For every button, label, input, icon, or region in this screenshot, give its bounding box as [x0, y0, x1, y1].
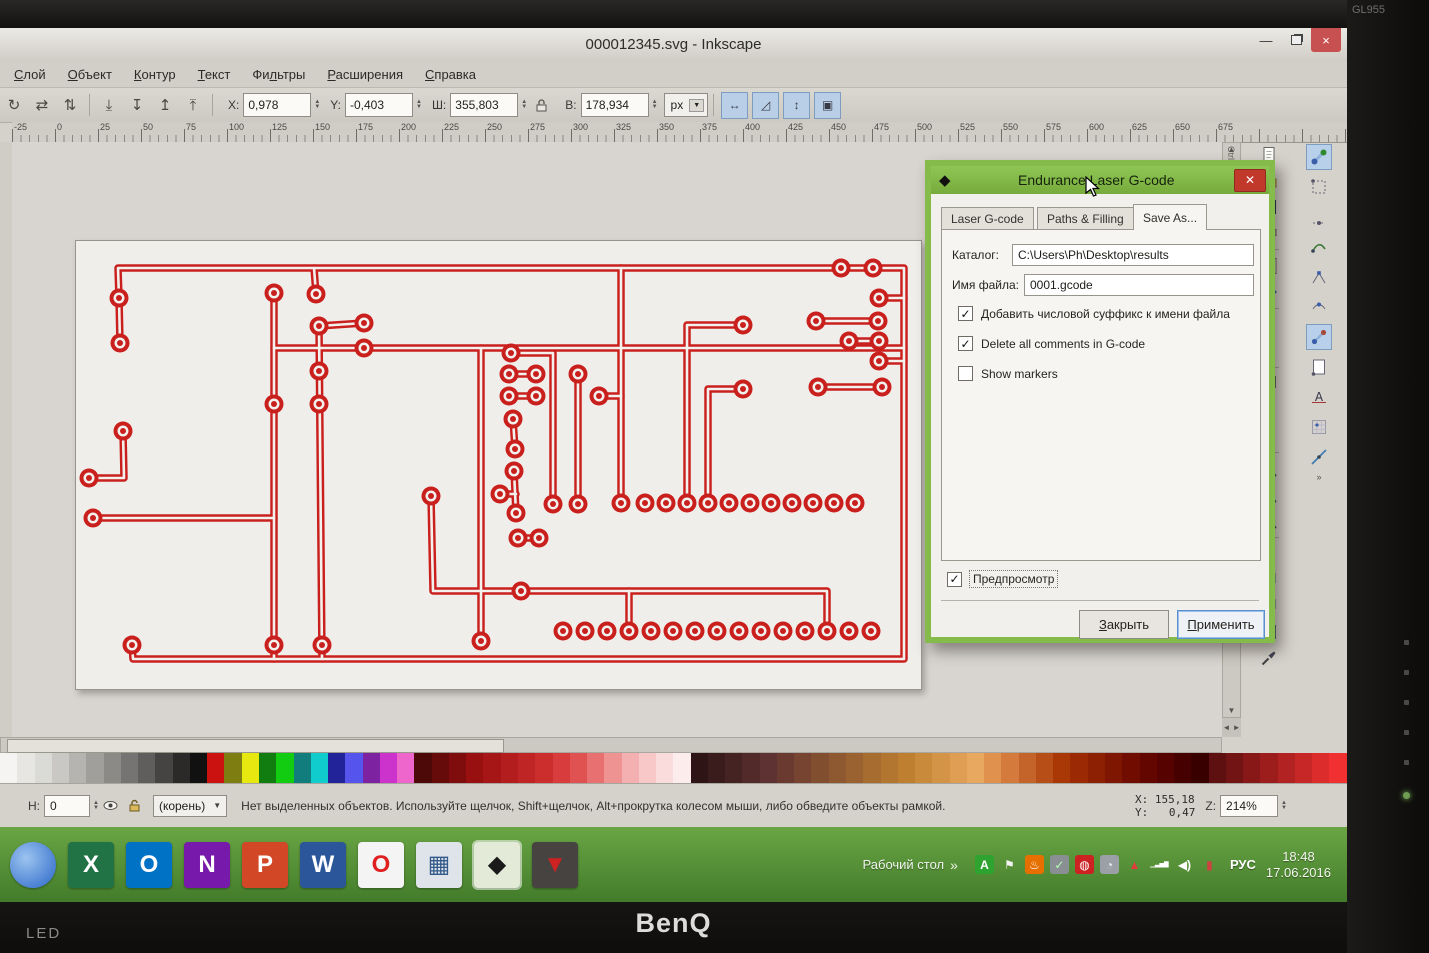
enter-button[interactable] [1404, 760, 1409, 765]
clock[interactable]: 18:4817.06.2016 [1266, 849, 1331, 881]
preview-label: Предпросмотр [970, 571, 1057, 587]
height-field[interactable]: 178,934 [581, 93, 649, 117]
dialog-close-icon[interactable]: ✕ [1234, 169, 1266, 192]
mouse-cursor [1085, 176, 1101, 198]
scale-corners-toggle[interactable]: ◿ [752, 92, 779, 119]
palette-swatch[interactable] [1019, 753, 1036, 783]
palette-swatch[interactable] [35, 753, 52, 783]
monitor-power-button[interactable] [1403, 792, 1410, 799]
ruler-tick-label: 575 [1046, 122, 1061, 132]
tab-Laser G-code[interactable]: Laser G-code [941, 207, 1034, 230]
palette-swatch[interactable] [207, 753, 224, 783]
tray-usb-eject-icon[interactable]: ✓ [1050, 855, 1069, 874]
snap-node-path-icon[interactable] [1306, 234, 1332, 260]
palette-swatch[interactable] [104, 753, 121, 783]
tray-action-center-flag-icon[interactable]: ⚑ [1000, 855, 1019, 874]
dialog-separator [941, 600, 1259, 601]
palette-swatch[interactable] [1001, 753, 1018, 783]
svg-text:A: A [1315, 390, 1324, 404]
raise-icon[interactable]: ↥ [152, 92, 178, 118]
palette-swatch[interactable] [1278, 753, 1295, 783]
catalog-input[interactable]: C:\Users\Ph\Desktop\results [1012, 244, 1254, 266]
height-field-label: В: [565, 98, 576, 112]
palette-swatch[interactable] [811, 753, 828, 783]
palette-swatch[interactable] [1260, 753, 1277, 783]
palette-swatch[interactable] [1191, 753, 1208, 783]
statusbar: Н: 0 ▲▼ (корень)▼ Нет выделенных объекто… [0, 783, 1347, 827]
document-page[interactable] [75, 240, 922, 690]
flip-vertical-icon[interactable]: ⇅ [57, 92, 83, 118]
ruler-tick-label: 450 [831, 122, 846, 132]
palette-swatch[interactable] [518, 753, 535, 783]
palette-swatch[interactable] [760, 753, 777, 783]
restore-icon [1291, 35, 1302, 45]
palette-swatch[interactable] [311, 753, 328, 783]
opacity-spinner[interactable]: ▲▼ [93, 801, 99, 811]
palette-swatch[interactable] [276, 753, 293, 783]
palette-swatch[interactable] [138, 753, 155, 783]
palette-swatch[interactable] [777, 753, 794, 783]
palette-swatch[interactable] [984, 753, 1001, 783]
status-message: Нет выделенных объектов. Используйте щел… [241, 799, 1135, 813]
palette-swatch[interactable] [1053, 753, 1070, 783]
toolbar-chevron-icon[interactable]: » [950, 857, 958, 873]
checkbox[interactable]: ✓ [958, 306, 973, 321]
menu-Слой[interactable]: Слой [14, 67, 46, 82]
lock-ratio-icon[interactable] [528, 92, 554, 118]
tab-Paths & Filling[interactable]: Paths & Filling [1037, 207, 1134, 230]
units-dropdown[interactable]: px▼ [664, 93, 709, 117]
snap-bbox-edge-icon[interactable] [1306, 204, 1332, 230]
menubar: СлойОбъектКонтурТекстФильтрыРасширенияСп… [0, 62, 1347, 88]
palette-swatch[interactable] [967, 753, 984, 783]
checkbox[interactable] [958, 366, 973, 381]
palette-swatch[interactable] [1295, 753, 1312, 783]
checkbox-label: Добавить числовой суффикс к имени файла [981, 307, 1230, 321]
palette-swatch[interactable] [535, 753, 552, 783]
zoom-input[interactable]: 214% [1220, 795, 1278, 817]
horizontal-ruler[interactable]: -250255075100125150175200225250275300325… [12, 122, 1347, 143]
scale-stroke-toggle[interactable]: ↔ [721, 92, 748, 119]
dialog-apply-button[interactable]: Применить [1177, 610, 1265, 639]
tray-network-signal-icon[interactable]: ▁▃▅▇ [1150, 855, 1169, 874]
snap-more-icon[interactable]: » [1316, 472, 1321, 482]
palette-swatch[interactable] [190, 753, 207, 783]
checkbox-label: Show markers [981, 367, 1058, 381]
auto-button[interactable] [1404, 640, 1409, 645]
monitor-brand-logo: BenQ [0, 908, 1347, 939]
window-titlebar: 000012345.svg - Inkscape — × [0, 28, 1347, 63]
desktop-toolbar-label[interactable]: Рабочий стол [863, 857, 945, 872]
ruler-tick-label: 375 [702, 122, 717, 132]
palette-swatch[interactable] [242, 753, 259, 783]
dialog-checkbox-row[interactable]: ✓Добавить числовой суффикс к имени файла [958, 306, 1230, 321]
menu-Текст[interactable]: Текст [198, 67, 231, 82]
tray-antivirus-icon[interactable]: ◍ [1075, 855, 1094, 874]
ruler-tick-label: 0 [57, 122, 62, 132]
palette-swatch[interactable] [829, 753, 846, 783]
opacity-input[interactable]: 0 [44, 795, 90, 817]
ruler-tick-label: 25 [100, 122, 110, 132]
ruler-tick-label: 200 [401, 122, 416, 132]
taskbar-app-calculator[interactable]: ▦ [416, 842, 462, 888]
preview-checkbox[interactable]: ✓ [947, 572, 962, 587]
language-indicator[interactable]: РУС [1230, 857, 1256, 872]
ruler-tick-label: 350 [659, 122, 674, 132]
taskbar-app-powerpoint[interactable]: P [242, 842, 288, 888]
snap-node-cusp-icon[interactable] [1306, 264, 1332, 290]
ruler-tick-label: 300 [573, 122, 588, 132]
cursor-coordinates: X: 155,18 Y: 0,47 [1135, 793, 1195, 819]
palette-swatch[interactable] [1209, 753, 1226, 783]
y-field[interactable]: -0,403 [345, 93, 413, 117]
y-field-spinner[interactable]: ▲▼ [416, 100, 422, 110]
ruler-tick-label: 550 [1003, 122, 1018, 132]
ruler-tick-label: 150 [315, 122, 330, 132]
ruler-tick-label: 525 [960, 122, 975, 132]
monitor-led-label: LED [26, 925, 61, 942]
palette-swatch[interactable] [432, 753, 449, 783]
pcb-drawing[interactable] [76, 241, 921, 689]
palette-swatch[interactable] [673, 753, 690, 783]
taskbar-app-laser-app[interactable]: ▼ [532, 842, 578, 888]
pcb-traces-outer [89, 268, 904, 659]
snap-controls-bar: A» [1298, 142, 1340, 482]
palette-swatch[interactable] [414, 753, 431, 783]
layer-lock-icon[interactable] [126, 797, 144, 815]
palette-swatch[interactable] [1243, 753, 1260, 783]
snap-others-icon[interactable] [1306, 324, 1332, 350]
menu-Контур[interactable]: Контур [134, 67, 176, 82]
tray-battery-icon[interactable]: ▮ [1200, 855, 1219, 874]
palette-swatch[interactable] [1070, 753, 1087, 783]
dialog-tab-panel: Каталог: C:\Users\Ph\Desktop\results Имя… [941, 229, 1261, 561]
menu-Фильтры[interactable]: Фильтры [252, 67, 305, 82]
palette-swatch[interactable] [155, 753, 172, 783]
ruler-tick-label: 425 [788, 122, 803, 132]
palette-swatch[interactable] [380, 753, 397, 783]
palette-swatch[interactable] [742, 753, 759, 783]
palette-swatch[interactable] [932, 753, 949, 783]
palette-swatch[interactable] [483, 753, 500, 783]
ruler-tick-label: 475 [874, 122, 889, 132]
palette-swatch[interactable] [17, 753, 34, 783]
palette-swatch[interactable] [259, 753, 276, 783]
palette-swatch[interactable] [604, 753, 621, 783]
palette-swatch[interactable] [363, 753, 380, 783]
rotate-90-icon[interactable]: ↻ [1, 92, 27, 118]
palette-swatch[interactable] [1122, 753, 1139, 783]
ruler-tick-label: 650 [1175, 122, 1190, 132]
palette-swatch[interactable] [86, 753, 103, 783]
tool-controls-bar: ↻⇄⇅⤓↧↥⤒ X:0,978▲▼Y:-0,403▲▼Ш:355,803▲▼В:… [0, 88, 1347, 123]
tray-cloud-icon[interactable]: ◔ [1100, 855, 1119, 874]
checkbox-label: Delete all comments in G-code [981, 337, 1145, 351]
palette-swatch[interactable] [898, 753, 915, 783]
eyedropper-icon[interactable] [1257, 646, 1281, 670]
opacity-label: Н: [28, 799, 40, 813]
palette-swatch[interactable] [915, 753, 932, 783]
ruler-tick-label: 125 [272, 122, 287, 132]
snap-master-icon[interactable] [1306, 144, 1332, 170]
ruler-tick-label: 75 [186, 122, 196, 132]
menu-Объект[interactable]: Объект [68, 67, 112, 82]
taskbar-app-blue-orb-app[interactable] [10, 842, 56, 888]
palette-swatch[interactable] [52, 753, 69, 783]
palette-swatch[interactable] [224, 753, 241, 783]
lower-to-bottom-icon[interactable]: ⤓ [96, 92, 122, 118]
lower-icon[interactable]: ↧ [124, 92, 150, 118]
ruler-tick-label: 600 [1089, 122, 1104, 132]
dialog-checkbox-row[interactable]: ✓Delete all comments in G-code [958, 336, 1145, 351]
ruler-tick-label: -25 [14, 122, 27, 132]
palette-swatch[interactable] [397, 753, 414, 783]
ruler-tick-label: 250 [487, 122, 502, 132]
checkbox[interactable]: ✓ [958, 336, 973, 351]
palette-swatch[interactable] [639, 753, 656, 783]
layer-selector[interactable]: (корень)▼ [153, 795, 227, 817]
monitor-bezel-right [1347, 0, 1429, 953]
ruler-tick-label: 50 [143, 122, 153, 132]
screen: 000012345.svg - Inkscape — × СлойОбъектК… [0, 28, 1347, 902]
taskbar: XONPWO▦◆▼ Рабочий стол » A⚑♨✓◍◔▲▁▃▅▇◀)▮ … [0, 827, 1347, 902]
dialog-checkbox-row[interactable]: Show markers [958, 366, 1058, 381]
up-button[interactable] [1404, 700, 1409, 705]
palette-swatch[interactable] [1036, 753, 1053, 783]
x-field-spinner[interactable]: ▲▼ [314, 100, 320, 110]
snap-grid-icon[interactable] [1306, 414, 1332, 440]
palette-swatch[interactable] [622, 753, 639, 783]
taskbar-app-opera[interactable]: O [358, 842, 404, 888]
taskbar-app-inkscape[interactable]: ◆ [474, 842, 520, 888]
snap-guide-icon[interactable] [1306, 444, 1332, 470]
snap-text-baseline-icon[interactable]: A [1306, 384, 1332, 410]
palette-swatch[interactable] [466, 753, 483, 783]
dialog-close-button[interactable]: Закрыть [1079, 610, 1169, 639]
zoom-spinner[interactable]: ▲▼ [1281, 801, 1287, 811]
palette-swatch[interactable] [1157, 753, 1174, 783]
palette-swatch[interactable] [725, 753, 742, 783]
width-field[interactable]: 355,803 [450, 93, 518, 117]
scale-patterns-toggle[interactable]: ▣ [814, 92, 841, 119]
filename-label: Имя файла: [952, 278, 1024, 292]
tray-java-icon[interactable]: ♨ [1025, 855, 1044, 874]
palette-swatch[interactable] [587, 753, 604, 783]
scroll-corner[interactable]: ◄ ► [1222, 718, 1241, 737]
width-field-label: Ш: [432, 98, 446, 112]
palette-swatch[interactable] [708, 753, 725, 783]
pcb-pads [80, 259, 892, 655]
minimize-button[interactable]: — [1251, 28, 1281, 52]
monitor-model-label: GL955 [1352, 4, 1385, 16]
taskbar-app-excel[interactable]: X [68, 842, 114, 888]
tray-volume-icon[interactable]: ◀) [1175, 855, 1194, 874]
preview-checkbox-row[interactable]: ✓Предпросмотр [947, 571, 1057, 587]
close-button[interactable]: × [1311, 28, 1341, 52]
y-field-label: Y: [330, 98, 341, 112]
palette-swatch[interactable] [345, 753, 362, 783]
flip-horizontal-icon[interactable]: ⇄ [29, 92, 55, 118]
menu-button[interactable] [1404, 670, 1409, 675]
zoom-label: Z: [1205, 799, 1216, 813]
palette-swatch[interactable] [1088, 753, 1105, 783]
ruler-tick-label: 400 [745, 122, 760, 132]
filename-input[interactable]: 0001.gcode [1024, 274, 1254, 296]
palette-swatch[interactable] [121, 753, 138, 783]
palette-swatch[interactable] [863, 753, 880, 783]
palette-swatch[interactable] [328, 753, 345, 783]
horizontal-scroll-thumb[interactable] [7, 739, 504, 753]
palette-swatch[interactable] [691, 753, 708, 783]
palette-swatch[interactable] [1105, 753, 1122, 783]
down-button[interactable] [1404, 730, 1409, 735]
height-field-spinner[interactable]: ▲▼ [652, 100, 658, 110]
palette-swatch[interactable] [1329, 753, 1346, 783]
palette-swatch[interactable] [570, 753, 587, 783]
snap-page-icon[interactable] [1306, 354, 1332, 380]
taskbar-app-onenote[interactable]: N [184, 842, 230, 888]
taskbar-app-outlook[interactable]: O [126, 842, 172, 888]
scale-gradients-toggle[interactable]: ↕ [783, 92, 810, 119]
ruler-tick-label: 625 [1132, 122, 1147, 132]
monitor-bezel-top [0, 0, 1347, 28]
palette-swatch[interactable] [553, 753, 570, 783]
menu-Расширения[interactable]: Расширения [327, 67, 403, 82]
palette-swatch[interactable] [656, 753, 673, 783]
scroll-down-icon[interactable]: ▼ [1223, 706, 1240, 715]
ruler-tick-label: 325 [616, 122, 631, 132]
tab-Save As...[interactable]: Save As... [1133, 204, 1207, 230]
palette-swatch[interactable] [294, 753, 311, 783]
taskbar-app-word[interactable]: W [300, 842, 346, 888]
ruler-tick-label: 100 [229, 122, 244, 132]
raise-to-top-icon[interactable]: ⤒ [180, 92, 206, 118]
inkscape-logo-icon: ◆ [939, 171, 951, 189]
snap-node-smooth-icon[interactable] [1306, 294, 1332, 320]
palette-swatch[interactable] [173, 753, 190, 783]
color-palette [0, 753, 1347, 783]
palette-swatch[interactable] [0, 753, 17, 783]
palette-swatch[interactable] [1140, 753, 1157, 783]
horizontal-scrollbar[interactable] [0, 737, 1222, 753]
tray-punto-switcher-icon[interactable]: A [975, 855, 994, 874]
palette-swatch[interactable] [1226, 753, 1243, 783]
menu-Справка[interactable]: Справка [425, 67, 476, 82]
palette-swatch[interactable] [794, 753, 811, 783]
endurance-laser-dialog: ◆ Endurance Laser G-code ✕ Laser G-codeP… [925, 160, 1275, 643]
chevron-down-icon: ▼ [689, 99, 704, 112]
restore-button[interactable] [1281, 28, 1311, 52]
ruler-tick-label: 675 [1218, 122, 1233, 132]
ruler-tick-label: 175 [358, 122, 373, 132]
layer-visibility-icon[interactable] [102, 797, 120, 815]
palette-swatch[interactable] [501, 753, 518, 783]
x-field[interactable]: 0,978 [243, 93, 311, 117]
palette-swatch[interactable] [846, 753, 863, 783]
palette-swatch[interactable] [881, 753, 898, 783]
ruler-tick-label: 275 [530, 122, 545, 132]
window-title: 000012345.svg - Inkscape [0, 28, 1347, 62]
palette-swatch[interactable] [950, 753, 967, 783]
pcb-traces-inner [89, 268, 904, 659]
width-field-spinner[interactable]: ▲▼ [521, 100, 527, 110]
palette-swatch[interactable] [449, 753, 466, 783]
ruler-tick-label: 500 [917, 122, 932, 132]
catalog-label: Каталог: [952, 248, 1012, 262]
x-field-label: X: [228, 98, 239, 112]
palette-swatch[interactable] [1174, 753, 1191, 783]
palette-swatch[interactable] [69, 753, 86, 783]
ruler-tick-label: 225 [444, 122, 459, 132]
palette-swatch[interactable] [1312, 753, 1329, 783]
snap-bbox-icon[interactable] [1306, 174, 1332, 200]
tray-warning-icon[interactable]: ▲ [1125, 855, 1144, 874]
